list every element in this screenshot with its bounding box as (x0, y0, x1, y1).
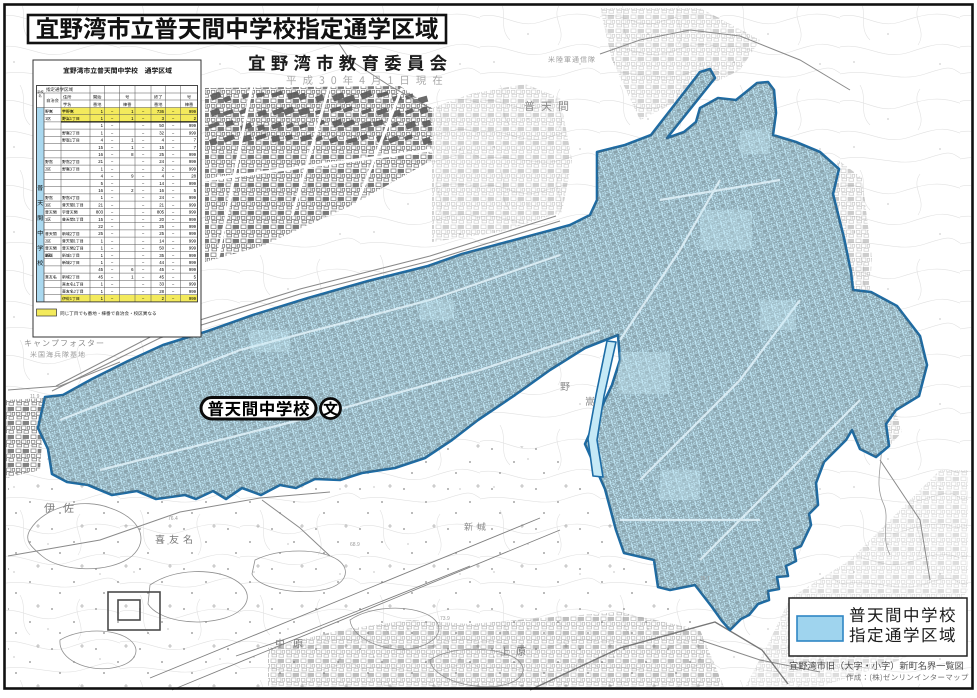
svg-text:999: 999 (189, 152, 197, 157)
svg-text:45: 45 (159, 267, 164, 272)
svg-text:50: 50 (159, 123, 164, 128)
svg-text:33: 33 (159, 282, 164, 287)
svg-text:999: 999 (189, 195, 197, 200)
svg-text:45: 45 (159, 274, 164, 279)
svg-text:25: 25 (159, 231, 164, 236)
svg-text:24: 24 (159, 195, 164, 200)
svg-text:35: 35 (159, 253, 164, 258)
svg-text:45: 45 (98, 274, 103, 279)
svg-text:999: 999 (189, 217, 197, 222)
svg-text:68.9: 68.9 (350, 542, 360, 548)
svg-text:16: 16 (98, 152, 103, 157)
svg-text:45: 45 (98, 267, 103, 272)
svg-text:999: 999 (189, 260, 197, 265)
svg-text:999: 999 (189, 166, 197, 171)
svg-text:21: 21 (98, 159, 103, 164)
svg-text:15: 15 (159, 145, 164, 150)
svg-text:999: 999 (189, 238, 197, 243)
svg-text:999: 999 (189, 267, 197, 272)
svg-text:999: 999 (189, 253, 197, 258)
svg-text:20: 20 (159, 217, 164, 222)
svg-text:999: 999 (189, 289, 197, 294)
svg-text:999: 999 (189, 296, 197, 301)
svg-text:999: 999 (189, 246, 197, 251)
svg-text:78.7: 78.7 (700, 576, 710, 582)
svg-text:999: 999 (189, 202, 197, 207)
svg-text:50: 50 (159, 246, 164, 251)
svg-text:76.4: 76.4 (168, 516, 178, 522)
svg-text:16: 16 (159, 188, 164, 193)
svg-text:25: 25 (98, 231, 103, 236)
svg-text:16: 16 (98, 188, 103, 193)
svg-text:803: 803 (96, 210, 104, 215)
svg-text:999: 999 (189, 282, 197, 287)
svg-text:999: 999 (189, 231, 197, 236)
svg-text:25: 25 (159, 224, 164, 229)
svg-text:736: 736 (157, 109, 165, 114)
svg-text:44: 44 (159, 260, 164, 265)
svg-text:28: 28 (159, 289, 164, 294)
svg-text:15: 15 (98, 217, 103, 222)
svg-text:22: 22 (98, 224, 103, 229)
svg-text:21: 21 (159, 202, 164, 207)
svg-text:15: 15 (98, 145, 103, 150)
svg-text:999: 999 (189, 181, 197, 186)
svg-text:999: 999 (189, 130, 197, 135)
svg-text:14: 14 (159, 238, 164, 243)
svg-text:73.9: 73.9 (440, 616, 450, 622)
svg-text:32: 32 (159, 130, 164, 135)
svg-text:999: 999 (189, 109, 197, 114)
svg-text:24: 24 (159, 159, 164, 164)
svg-text:11.9: 11.9 (30, 394, 40, 400)
svg-text:21: 21 (98, 202, 103, 207)
svg-text:999: 999 (189, 123, 197, 128)
svg-text:805: 805 (157, 210, 165, 215)
svg-text:999: 999 (189, 210, 197, 215)
svg-text:999: 999 (189, 159, 197, 164)
svg-text:25: 25 (159, 152, 164, 157)
svg-text:14: 14 (159, 181, 164, 186)
svg-text:28: 28 (191, 174, 196, 179)
svg-text:999: 999 (189, 224, 197, 229)
